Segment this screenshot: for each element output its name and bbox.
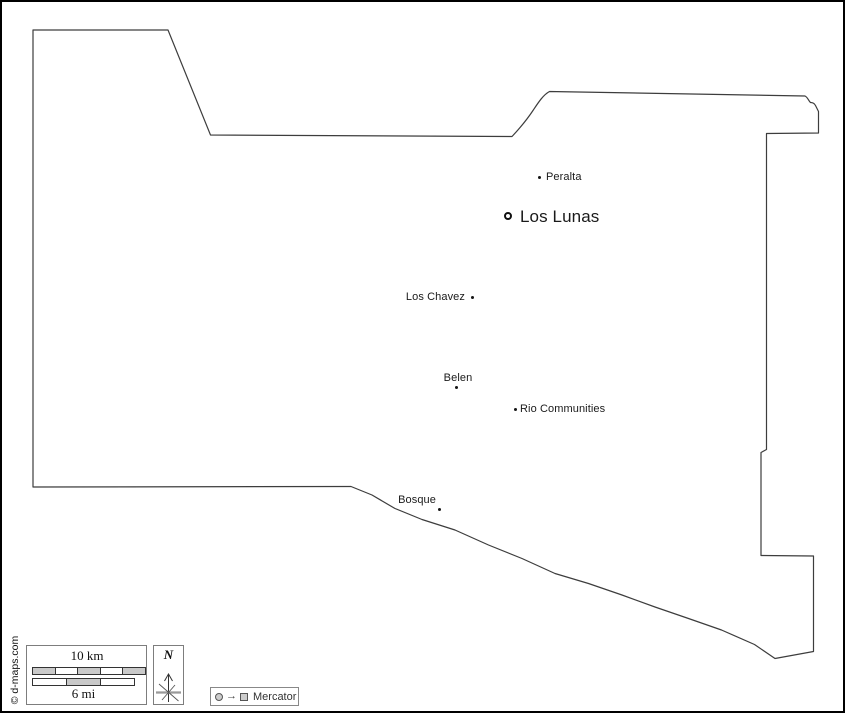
north-indicator: N	[153, 645, 184, 705]
sphere-icon	[215, 693, 223, 701]
north-label: N	[154, 647, 183, 663]
arrow-right-icon: →	[226, 691, 237, 702]
rio-communities-label: Rio Communities	[520, 403, 605, 416]
scale-mi-label: 6 mi	[32, 686, 135, 702]
bosque-label: Bosque	[398, 494, 436, 507]
los-lunas-ring-icon	[504, 212, 512, 220]
county-boundary	[33, 30, 819, 659]
projection-legend: → Mercator	[210, 687, 299, 706]
bosque-dot	[438, 508, 441, 511]
rio-communities-dot	[514, 408, 517, 411]
scale-bar: 10 km 6 mi	[26, 645, 147, 705]
belen-label: Belen	[444, 372, 473, 385]
belen-dot	[455, 386, 458, 389]
los-chavez-label: Los Chavez	[406, 291, 465, 304]
los-lunas-label: Los Lunas	[520, 206, 599, 227]
peralta-label: Peralta	[546, 171, 582, 184]
los-chavez-dot	[471, 296, 474, 299]
scale-mi-bar	[32, 678, 135, 686]
flat-map-icon	[240, 693, 248, 701]
projection-label: Mercator	[251, 691, 296, 703]
scale-km-bar	[32, 667, 146, 675]
attribution: © d-maps.com	[9, 632, 21, 708]
compass-star-icon	[154, 664, 183, 704]
county-outline-map	[2, 2, 845, 715]
scale-km-label: 10 km	[32, 648, 142, 664]
peralta-dot	[538, 176, 541, 179]
map-canvas: Peralta Los Lunas Los Chavez Belen Rio C…	[0, 0, 845, 713]
